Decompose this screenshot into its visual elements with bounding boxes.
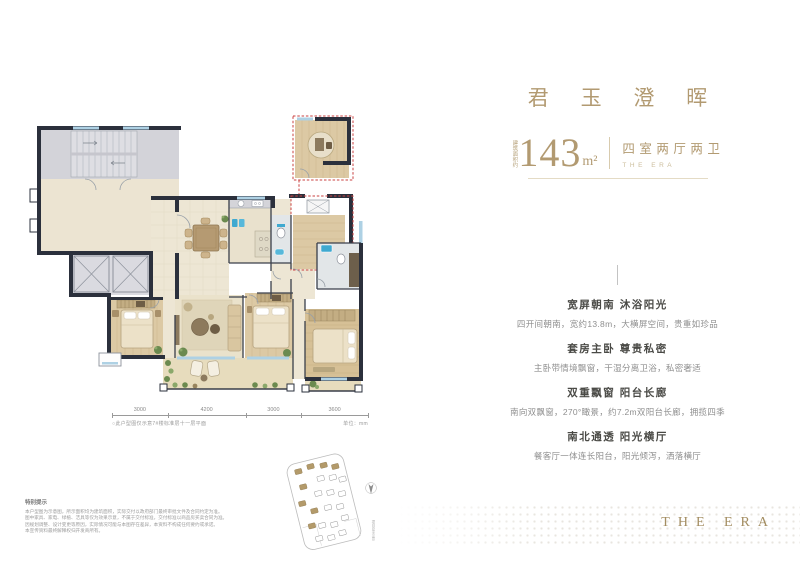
page: 3000 4200 3000 3600 ○此户型图仅示意7#楼标准层十一层平面 … [0,0,800,563]
feature-list: 宽屏朝南 沐浴阳光 四开间朝南，宽约13.8m，大横屏空间，贵重如珍品 套房主卧… [480,297,755,462]
plan-note: ○此户型图仅示意7#楼标准层十一层平面 [112,420,206,427]
kitchen [229,199,271,263]
feature-section: 南北通透 阳光横厅 餐客厅一体连长阳台，阳光倾泻，洒落横厅 [480,429,755,462]
stair-core [39,129,179,179]
area-value: 143 [518,137,581,170]
feature-section: 宽屏朝南 沐浴阳光 四开间朝南，宽约13.8m，大横屏空间，贵重如珍品 [480,297,755,330]
pattern-band: THE ERA [398,504,800,545]
feature-body: 南向双飘窗，270°瞰景，约7.2m双阳台长廊，拥揽四季 [480,406,755,418]
site-map-outline [285,452,363,551]
dimension-label: 3000 [112,407,168,413]
feature-heading: 双重飘窗 阳台长廊 [480,385,755,400]
brand-logo: THE ERA [661,515,776,531]
disclaimer: 特别提示 本户型图为示意图，所示面积均为建筑面积，实际交付以政府部门最终审批文件… [25,498,250,535]
layout-type-en: THE ERA [622,162,724,169]
floor-plan [25,103,385,403]
feature-heading: 宽屏朝南 沐浴阳光 [480,297,755,312]
feature-section: 套房主卧 尊贵私密 主卧带情境飘窗，干湿分离卫浴，私密奢适 [480,341,755,374]
project-title: 君 玉 澄 晖 [480,82,755,112]
flex-room [293,116,353,196]
feature-heading: 南北通透 阳光横厅 [480,429,755,444]
dimension-label: 3600 [301,407,368,413]
bedroom-left [109,299,163,357]
area-figure: 建筑面积约 143 m² 四室两厅两卫 THE ERA [480,137,755,170]
area-underline [528,178,708,179]
section-divider [617,265,618,285]
dimension-labels: 3000 4200 3000 3600 [112,407,368,413]
disclaimer-line: 图中家具、家电、绿植、洁具等仅为效果示意，不属于交付标准，交付标准以商品房买卖合… [25,515,250,521]
disclaimer-line: 本宣传资料最终解释权归开发商所有。 [25,528,250,534]
layout-type: 四室两厅两卫 [622,138,724,157]
bath-1 [271,215,291,263]
site-map-caption: 项目总平示意 [371,520,375,541]
dimension-bar: 3000 4200 3000 3600 ○此户型图仅示意7#楼标准层十一层平面 … [112,407,368,427]
site-map-svg: 项目总平示意 [283,450,383,558]
bedroom-middle [245,293,293,358]
feature-heading: 套房主卧 尊贵私密 [480,341,755,356]
living-room [175,295,243,358]
feature-body: 四开间朝南，宽约13.8m，大横屏空间，贵重如珍品 [480,318,755,330]
feature-body: 餐客厅一体连长阳台，阳光倾泻，洒落横厅 [480,450,755,462]
dimension-line [112,415,368,416]
compass-icon [366,483,377,494]
unit-label: 单位：mm [343,420,368,427]
vertical-divider [609,137,610,169]
feature-body: 主卧带情境飘窗，干湿分离卫浴，私密奢适 [480,362,755,374]
floor-plan-svg [25,103,385,403]
site-map: 项目总平示意 [283,450,383,558]
master-bedroom [305,309,361,379]
feature-section: 双重飘窗 阳台长廊 南向双飘窗，270°瞰景，约7.2m双阳台长廊，拥揽四季 [480,385,755,418]
disclaimer-title: 特别提示 [25,498,250,506]
elevators [71,253,151,295]
info-column: 君 玉 澄 晖 建筑面积约 143 m² 四室两厅两卫 THE ERA 宽屏朝南… [480,0,755,473]
dimension-label: 4200 [168,407,246,413]
area-prefix: 建筑面积约 [511,138,517,168]
area-unit: m² [582,154,597,170]
dimension-label: 3000 [246,407,302,413]
